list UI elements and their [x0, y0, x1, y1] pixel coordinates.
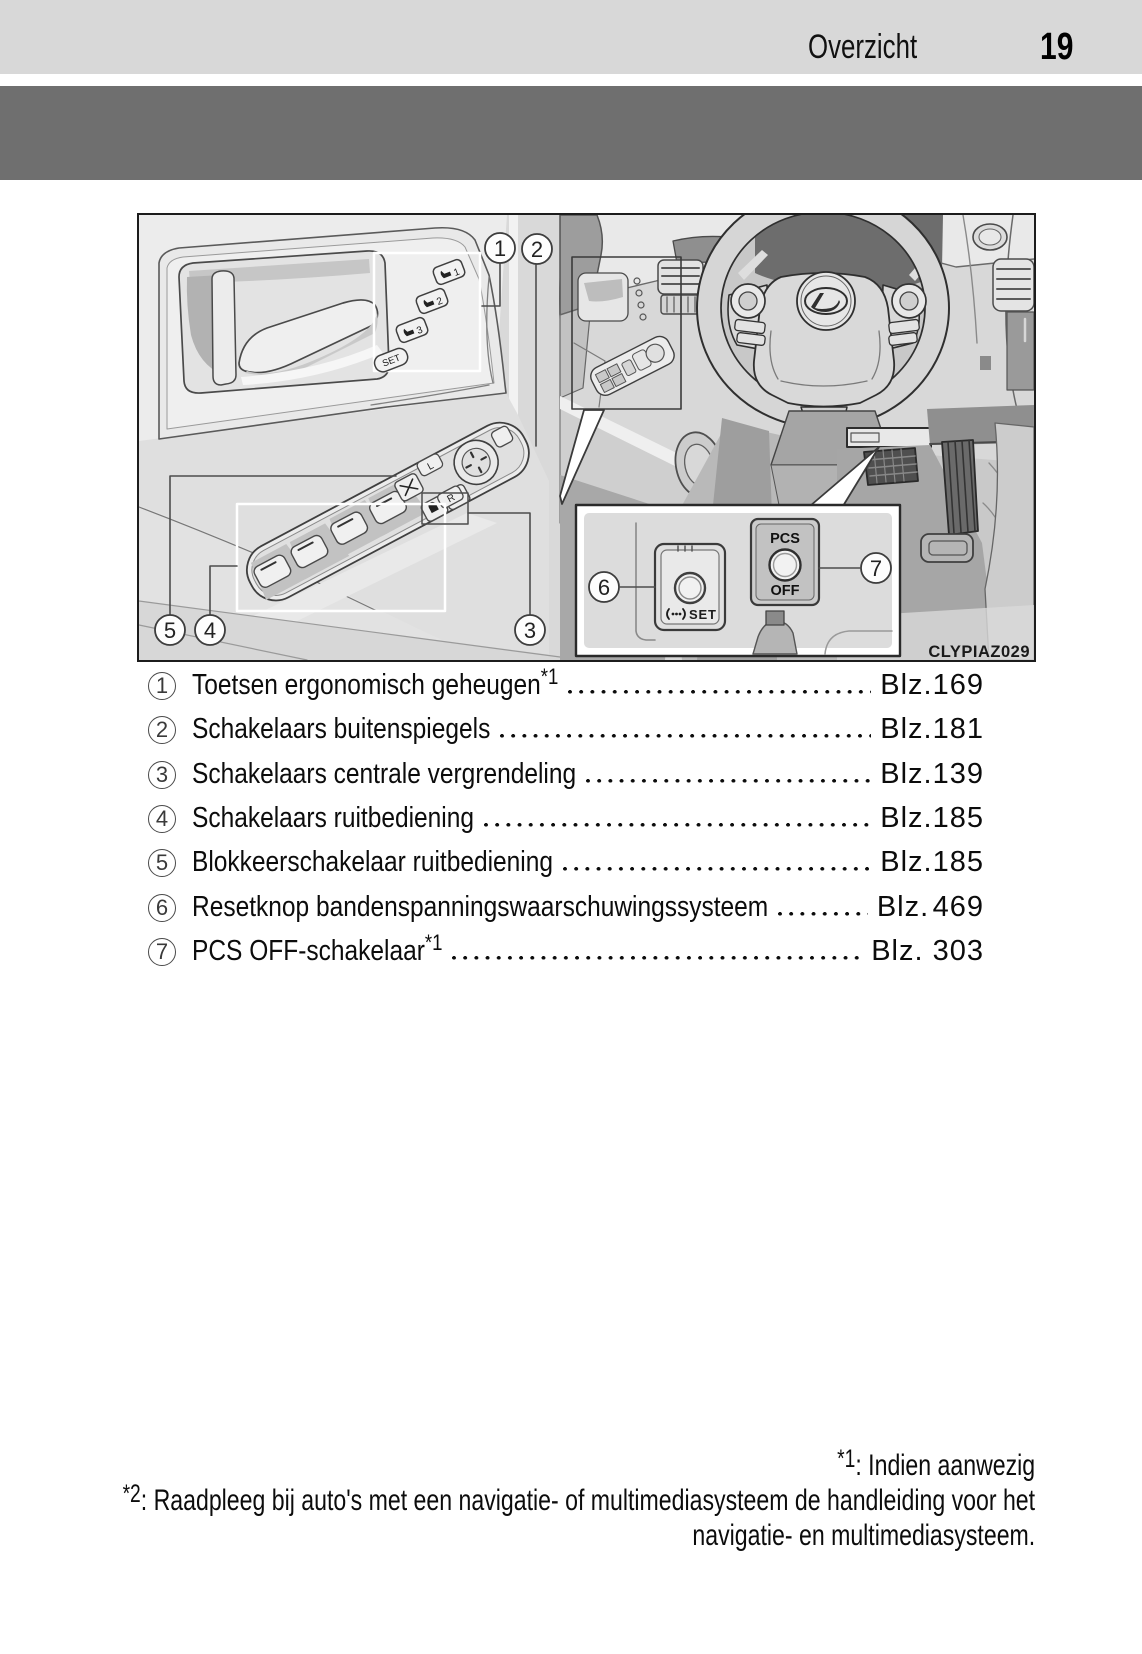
svg-text:4: 4	[204, 618, 216, 643]
svg-text:PCS: PCS	[770, 531, 800, 547]
svg-text:OFF: OFF	[771, 583, 800, 599]
svg-text:1: 1	[494, 236, 506, 261]
svg-text:2: 2	[531, 237, 543, 262]
svg-text:7: 7	[870, 556, 882, 581]
svg-text:CLYPIAZ029: CLYPIAZ029	[928, 643, 1030, 661]
svg-text:SET: SET	[689, 607, 717, 622]
svg-text:6: 6	[598, 575, 610, 600]
svg-text:3: 3	[524, 618, 536, 643]
svg-text:5: 5	[164, 618, 176, 643]
